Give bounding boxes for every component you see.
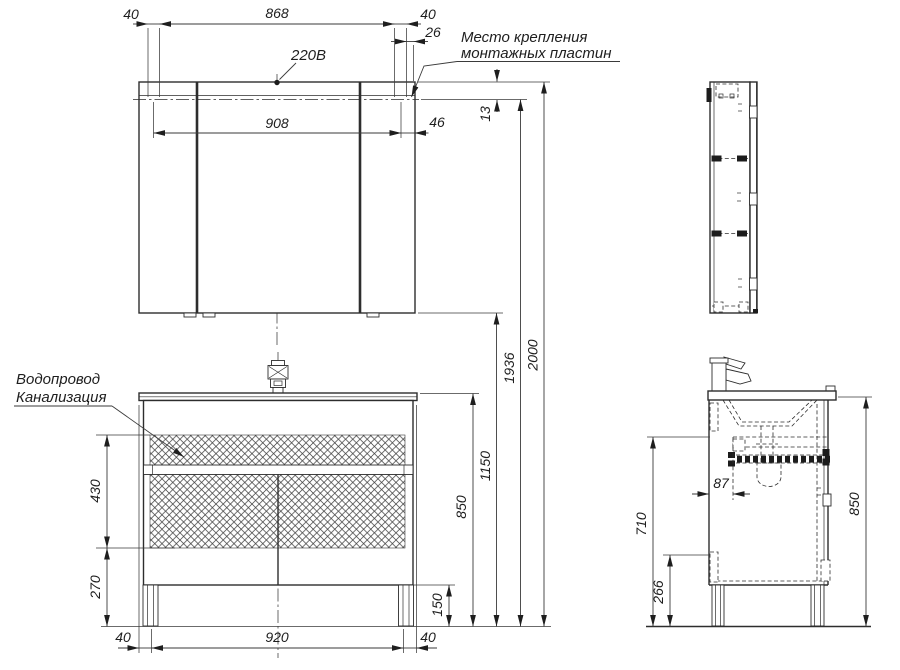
door-handle [184, 313, 196, 317]
dim-2000: 2000 [525, 339, 541, 371]
power-connection-point [274, 80, 279, 85]
faucet-side-icon [710, 357, 751, 391]
power-leader [280, 63, 297, 80]
dim-bottom-40-right: 40 [420, 629, 436, 645]
water-supply-label: Водопровод [16, 371, 100, 388]
dim-top-40-left: 40 [123, 6, 139, 22]
dim-87: 87 [713, 475, 730, 491]
drawer-rail [144, 465, 414, 475]
dim-920: 920 [265, 629, 289, 645]
dim-430: 430 [87, 479, 103, 503]
vanity-leg [143, 585, 158, 626]
vanity-leg [712, 585, 724, 626]
countertop-profile [708, 391, 836, 400]
vanity-front-view [139, 352, 417, 658]
dim-1936: 1936 [501, 352, 517, 383]
mounting-plates-label-line1: Место крепления [461, 29, 587, 46]
dim-266: 266 [650, 580, 666, 605]
faucet-icon [268, 361, 288, 394]
dim-270: 270 [87, 575, 103, 600]
dim-46: 46 [429, 114, 445, 130]
mounting-plate [707, 88, 712, 102]
mounting-plates-label-line2: монтажных пластин [461, 45, 611, 62]
mounting-leader [412, 62, 458, 98]
mirror-cabinet-side-view [707, 82, 759, 313]
dim-bottom-40-left: 40 [115, 629, 131, 645]
door-handle [367, 313, 379, 317]
dim-side-850: 850 [846, 492, 862, 516]
dim-850: 850 [453, 495, 469, 519]
hinge [750, 106, 758, 118]
dim-13: 13 [477, 106, 493, 122]
dim-908: 908 [265, 115, 289, 131]
vanity-leg [811, 585, 824, 626]
vanity-side-view [646, 357, 871, 627]
hinge [750, 278, 758, 290]
dim-26: 26 [424, 24, 441, 40]
technical-drawing-page: 40 868 40 26 908 46 13 850 1150 1936 200… [0, 0, 900, 670]
siphon-trap-hidden [757, 463, 781, 487]
dim-710: 710 [633, 512, 649, 536]
hinge [750, 193, 758, 205]
dim-150: 150 [429, 593, 445, 617]
furniture-installation-diagram: 40 868 40 26 908 46 13 850 1150 1936 200… [0, 0, 900, 670]
dim-1150: 1150 [477, 451, 493, 481]
dim-top-40-right: 40 [420, 6, 436, 22]
mounting-strip [728, 449, 830, 467]
door-handle [203, 313, 215, 317]
vanity-leg [399, 585, 414, 626]
sewerage-label: Канализация [16, 389, 107, 406]
power-label: 220В [290, 47, 326, 64]
dim-868: 868 [265, 5, 289, 21]
